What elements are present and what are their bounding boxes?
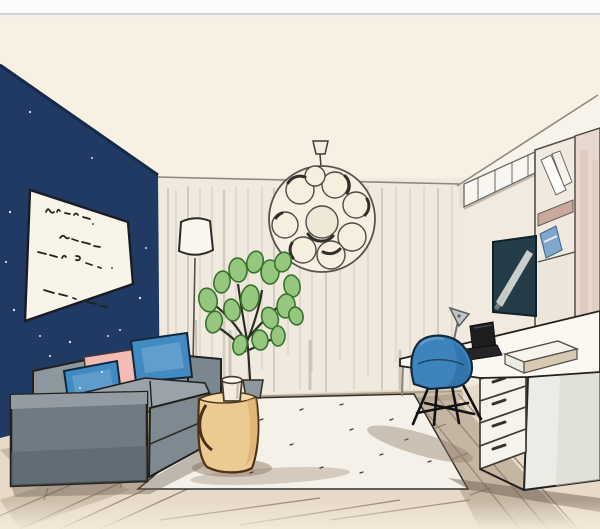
- interior-sketch-image: [0, 0, 600, 529]
- bookshelf: [535, 136, 577, 336]
- blue-pillow-right: [131, 333, 192, 382]
- desk-leg: [402, 364, 403, 396]
- sketch-canvas: [0, 0, 600, 529]
- photo-border: [0, 0, 600, 17]
- mug: [222, 377, 242, 401]
- sofa-near-arm: [11, 392, 147, 486]
- floor-lamp-shade: [179, 218, 213, 255]
- bottom-fade: [0, 500, 600, 529]
- ceiling-mount: [313, 141, 328, 154]
- tv: [493, 236, 536, 316]
- drawer-stack: [480, 365, 526, 469]
- ottoman-side-table: [198, 392, 258, 472]
